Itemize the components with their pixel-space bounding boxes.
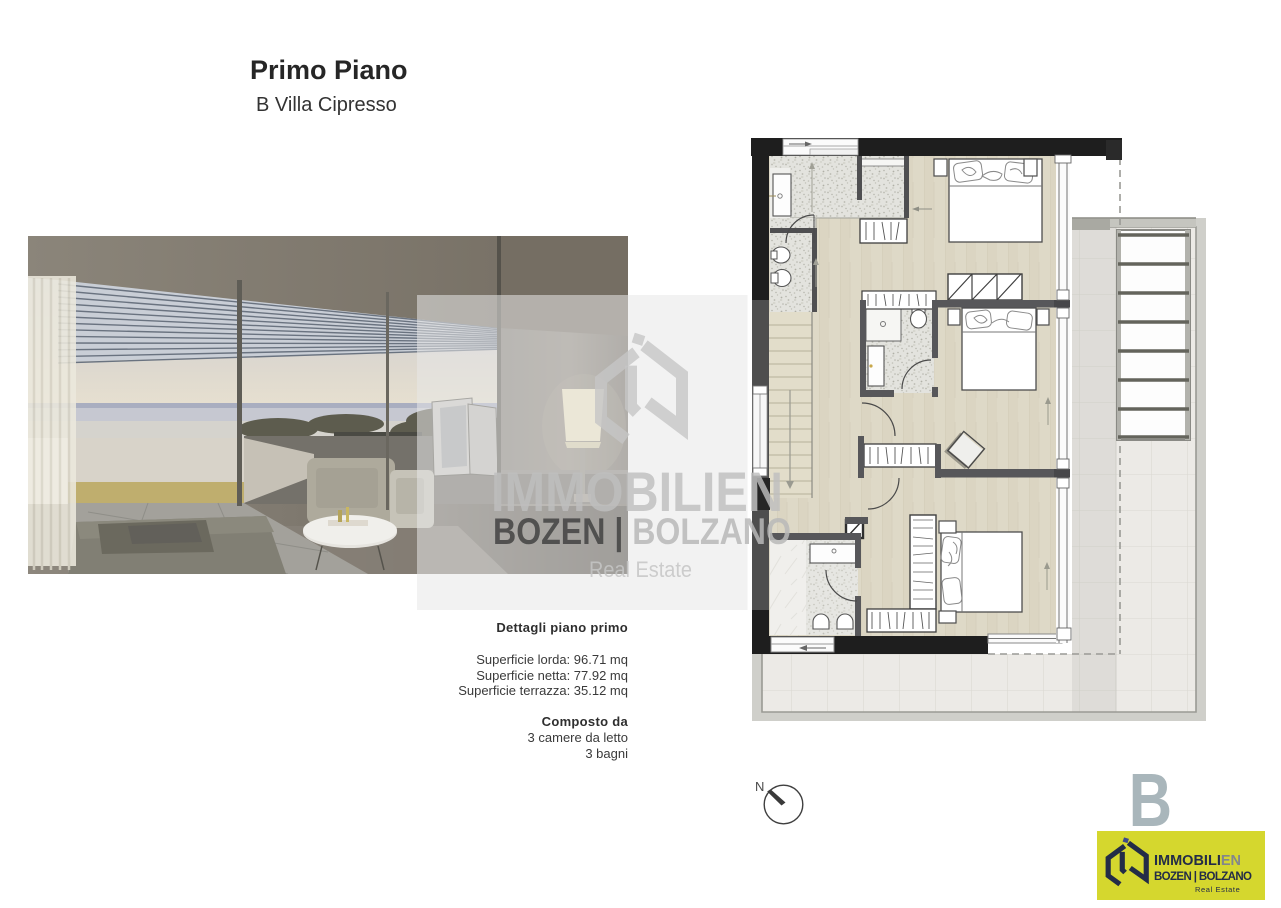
svg-text:IMMOBILIEN: IMMOBILIEN — [1154, 853, 1241, 869]
svg-text:Real Estate: Real Estate — [1195, 885, 1240, 894]
svg-text:BOZEN | BOLZANO: BOZEN | BOLZANO — [1154, 871, 1252, 883]
svg-text:B: B — [1129, 760, 1172, 836]
svg-text:N: N — [755, 779, 764, 794]
